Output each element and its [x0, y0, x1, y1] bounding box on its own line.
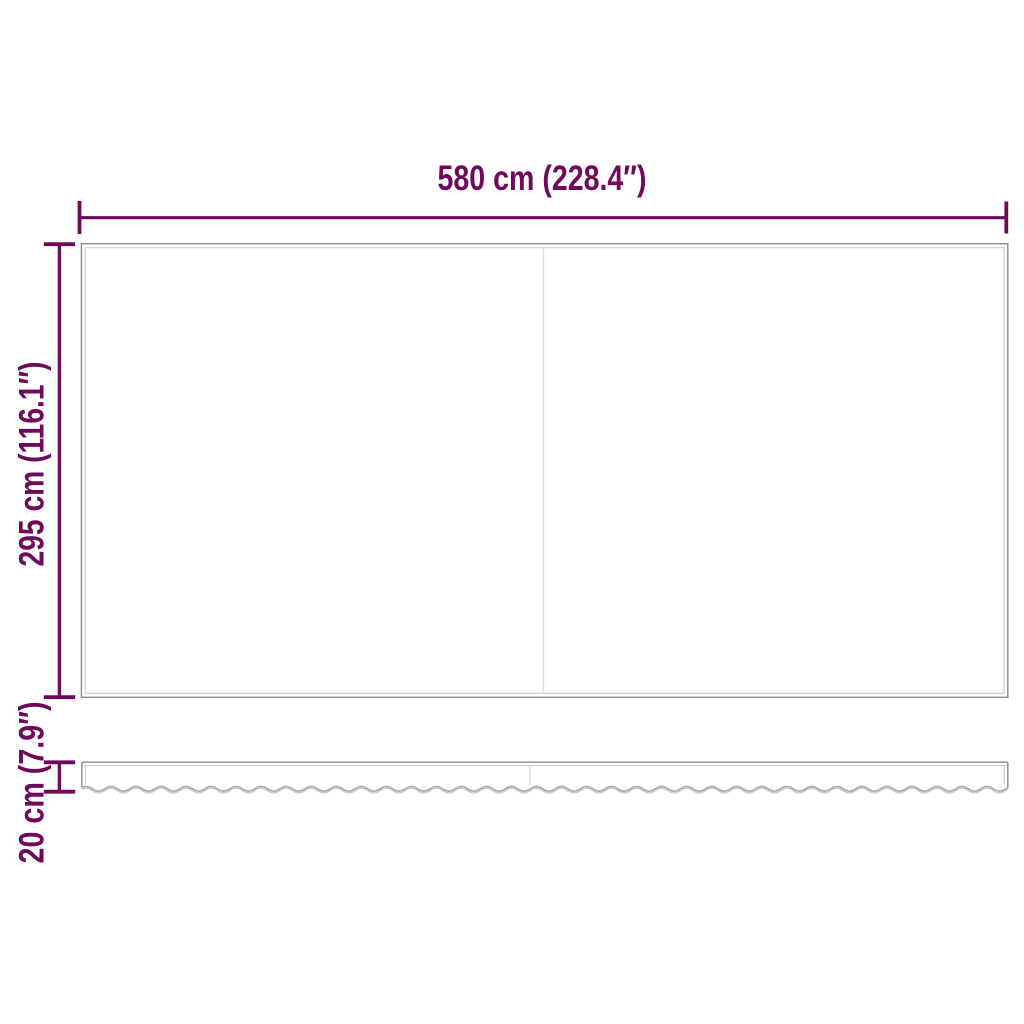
svg-text:580 cm (228.4″): 580 cm (228.4″) — [438, 159, 647, 198]
svg-text:20 cm (7.9″): 20 cm (7.9″) — [13, 702, 52, 864]
svg-text:295 cm (116.1″): 295 cm (116.1″) — [13, 362, 52, 567]
